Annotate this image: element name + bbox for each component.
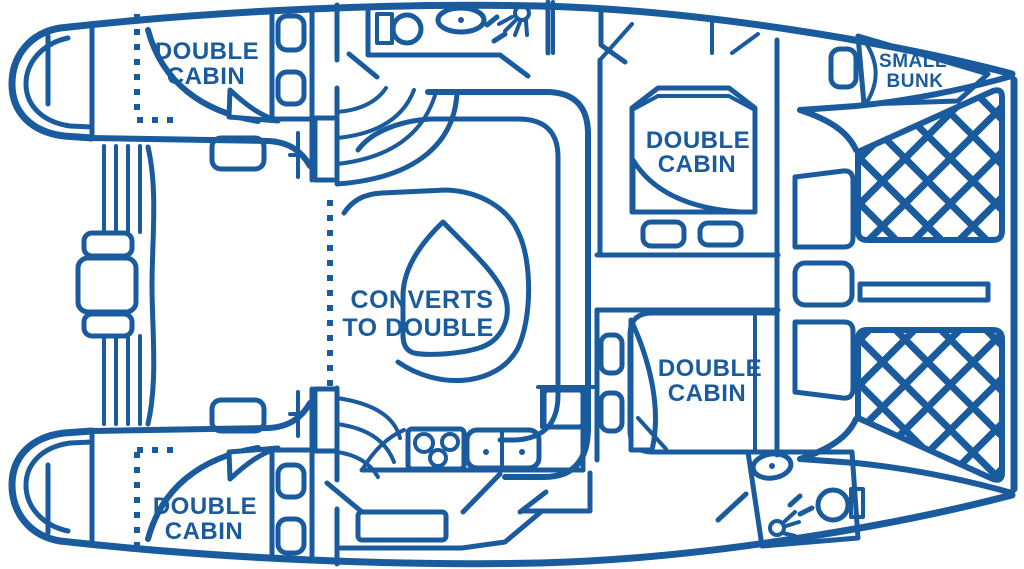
cabin-label-line2: CABIN: [658, 151, 737, 178]
trampoline-net-port: [858, 90, 1002, 240]
deck-hatch: [601, 335, 622, 373]
transom-starboard-inner: [26, 442, 92, 531]
sink-icon: [393, 15, 421, 43]
sink-icon: [818, 490, 848, 520]
shower-spray-icon: [487, 6, 529, 41]
cockpit-walls: [337, 5, 377, 564]
bunk-sheet-curl: [864, 40, 876, 102]
deck-hatch: [278, 519, 304, 553]
floor-plan-svg: DOUBLE CABIN DOUBLE CABIN: [0, 0, 1024, 569]
deck-hatch: [601, 393, 622, 431]
deck-hatch: [278, 72, 304, 104]
transom-port-inner: [26, 38, 92, 127]
shower-spray-icon: [770, 496, 812, 536]
toilet-drain-dot: [458, 17, 464, 23]
bow-seat: [795, 322, 853, 398]
cabin-label-line1: DOUBLE: [153, 493, 257, 520]
cabin-label-line2: CABIN: [167, 63, 246, 90]
deck-hatch: [278, 465, 304, 497]
cabin-label-line1: DOUBLE: [155, 38, 259, 65]
hull-inner-edge-starboard: [92, 403, 310, 431]
stove-burners: [415, 434, 458, 466]
bed-headboard: [632, 96, 755, 110]
cockpit-bench-seat: [358, 512, 446, 540]
door-hinge: [290, 392, 298, 436]
corridor-walls: [597, 255, 778, 310]
bunk-label-line1: SMALL: [879, 51, 947, 72]
stern-deck-side: [148, 147, 154, 424]
stairs-to-starboard-hull: [327, 388, 400, 512]
aft-cabin-port: DOUBLE CABIN: [148, 8, 337, 180]
aft-cabin-starboard: DOUBLE CABIN: [148, 389, 337, 561]
fwd-cabin-starboard: DOUBLE CABIN: [597, 310, 777, 460]
doorway: [315, 389, 337, 451]
settee-outer: [428, 92, 588, 477]
deck-hatch: [643, 222, 684, 246]
foredeck-curve-port: [800, 110, 856, 150]
head-port: [368, 2, 625, 76]
trampoline-net-starboard: [858, 330, 1002, 480]
cabin-label-line2: CABIN: [165, 518, 244, 545]
floor-plan-page: DOUBLE CABIN DOUBLE CABIN: [0, 0, 1024, 569]
stern-platform: [78, 146, 154, 424]
bow-seat: [795, 171, 853, 247]
hull-inner-edge-port: [92, 138, 310, 166]
stern-locker-bottom: [84, 314, 132, 336]
bunk-label-line2: BUNK: [887, 71, 944, 92]
deck-hatch: [278, 16, 304, 50]
bowsprit-beam: [860, 284, 988, 300]
forepeak-small-bunk: SMALL BUNK: [831, 36, 988, 104]
table-label-line2: TO DOUBLE: [342, 314, 493, 342]
stern-locker-top: [84, 233, 132, 256]
sink-drain-dot: [483, 449, 489, 455]
stairs-to-port-hull: [337, 88, 457, 184]
cabin-label-line2: CABIN: [668, 380, 747, 407]
cabin-label-line1: DOUBLE: [658, 355, 762, 382]
deck-hatch: [831, 49, 856, 87]
stern-dinghy-platform: [78, 258, 136, 312]
cabin-label-line1: DOUBLE: [646, 127, 750, 154]
doorway: [315, 118, 337, 180]
sink-pedestal: [377, 14, 392, 43]
door-hinge: [290, 133, 298, 177]
table-label-line1: CONVERTS: [351, 286, 494, 314]
deck-hatch: [700, 223, 741, 245]
aft-cockpit: [340, 473, 590, 548]
toilet-drain-dot: [769, 463, 775, 469]
sink-drain-dot: [519, 449, 525, 455]
anchor-locker: [795, 263, 852, 305]
